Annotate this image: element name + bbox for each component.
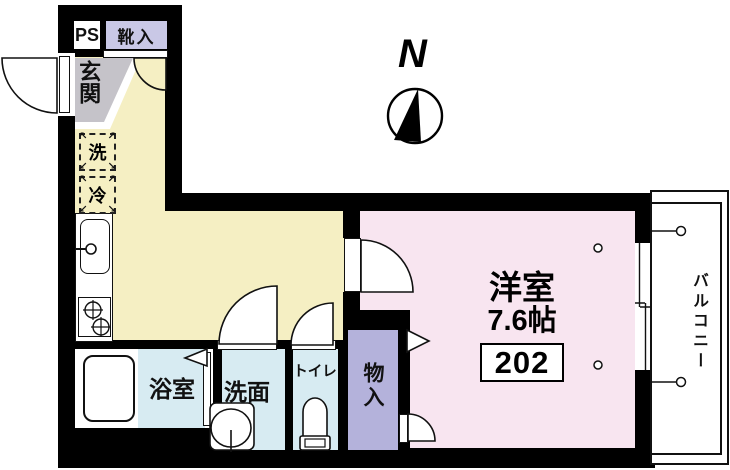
- wall-room-right-upper: [635, 193, 650, 243]
- compass-icon: [388, 89, 442, 143]
- wall-mid-horizontal: [165, 193, 650, 211]
- washroom-door-threshold: [217, 340, 277, 350]
- pipe-space-box: PS: [73, 20, 101, 50]
- room-door-leaf: [344, 238, 361, 292]
- floor-plan: PS 靴入 ↖ ↗ ↙ ↘ 洗 ↖ ↗ ↙ ↘ 冷: [0, 0, 730, 470]
- bathtub: [83, 355, 135, 422]
- toilet-door-threshold: [291, 340, 336, 350]
- wall-bottom: [58, 448, 655, 468]
- kitchen-sink: [80, 219, 110, 274]
- arrow-icon: ↖: [79, 132, 87, 142]
- bathroom-label: 浴室: [135, 374, 209, 400]
- wall-room-right-lower: [635, 370, 650, 450]
- compass-label: N: [398, 34, 427, 74]
- arrow-icon: ↙: [79, 162, 87, 172]
- main-room-size: 7.6帖: [428, 306, 616, 338]
- arrow-icon: ↘: [108, 162, 116, 172]
- arrow-icon: ↗: [108, 132, 116, 142]
- compass-needle-icon: [394, 89, 421, 142]
- front-door-swing: [2, 58, 57, 113]
- main-room-name: 洋室: [428, 271, 616, 306]
- entrance-label: 玄関: [77, 60, 100, 104]
- refrigerator-space: ↖ ↗ ↙ ↘ 冷: [79, 176, 116, 214]
- unit-number: 202: [495, 345, 550, 380]
- storage-door-leaf: [399, 414, 408, 443]
- wall-under-bath: [75, 426, 222, 450]
- hall-kitchen-floor-lower: [75, 211, 345, 341]
- shoe-cabinet-label: 靴入: [118, 23, 156, 48]
- main-room-label-block: 洋室 7.6帖 202: [428, 271, 616, 382]
- washer-label: 洗: [89, 139, 107, 165]
- shoe-cabinet-box: 靴入: [105, 20, 168, 50]
- arrow-icon: ↙: [79, 205, 87, 215]
- pipe-space-label: PS: [75, 25, 99, 46]
- arrow-icon: ↗: [108, 175, 116, 185]
- arrow-icon: ↖: [79, 175, 87, 185]
- wall-hall-room-upper: [343, 211, 360, 238]
- balcony-label: バルコニー: [690, 272, 706, 372]
- entrance-door-lintel: [103, 50, 168, 58]
- toilet-label: トイレ: [290, 361, 340, 379]
- unit-number-box: 202: [480, 343, 565, 383]
- stove: [78, 297, 111, 337]
- window-opening: [635, 243, 650, 370]
- front-door-leaf: [59, 56, 70, 113]
- washer-space: ↖ ↗ ↙ ↘ 洗: [79, 133, 116, 171]
- arrow-icon: ↘: [108, 205, 116, 215]
- storage-label: 物入: [362, 362, 383, 410]
- wall-top: [58, 5, 182, 17]
- balcony-inner-rail: [650, 202, 722, 455]
- refrigerator-label: 冷: [89, 182, 107, 208]
- washroom-label: 洗面: [216, 377, 278, 403]
